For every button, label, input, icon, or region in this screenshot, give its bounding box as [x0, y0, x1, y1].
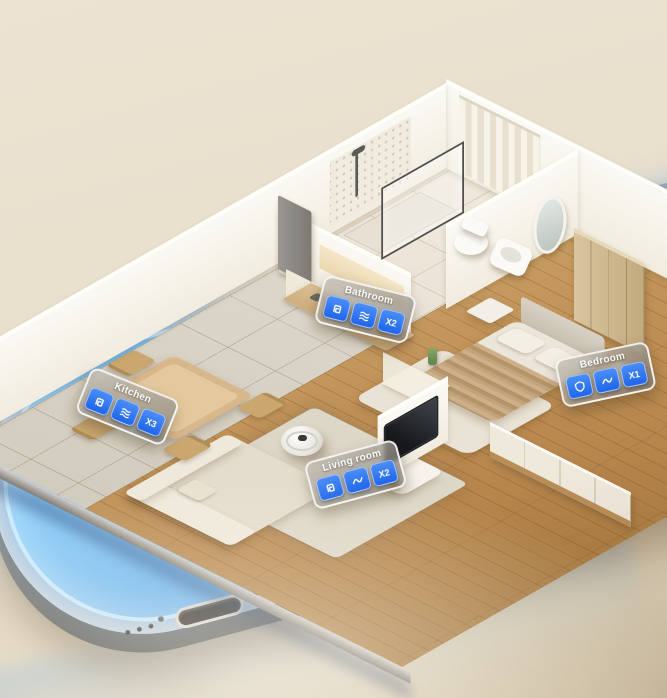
sink-basin — [498, 244, 524, 266]
green-bottle — [428, 348, 437, 365]
clean-count-badge: X2 — [376, 308, 406, 336]
mop-route-icon[interactable] — [592, 367, 621, 395]
vacuum-path-icon[interactable] — [315, 473, 345, 502]
shield-icon[interactable] — [565, 372, 594, 400]
clean-count-badge: X1 — [620, 361, 649, 389]
scene: Kitchen X3 Bathroom X2 Bedroom X1 Living… — [0, 0, 667, 698]
mop-waves-icon[interactable] — [349, 301, 379, 329]
robot-vacuum[interactable] — [281, 426, 323, 456]
clean-count-badge: X2 — [369, 459, 399, 488]
vacuum-path-icon[interactable] — [322, 294, 352, 322]
mop-route-icon[interactable] — [342, 466, 372, 495]
shower-bar — [355, 150, 358, 198]
